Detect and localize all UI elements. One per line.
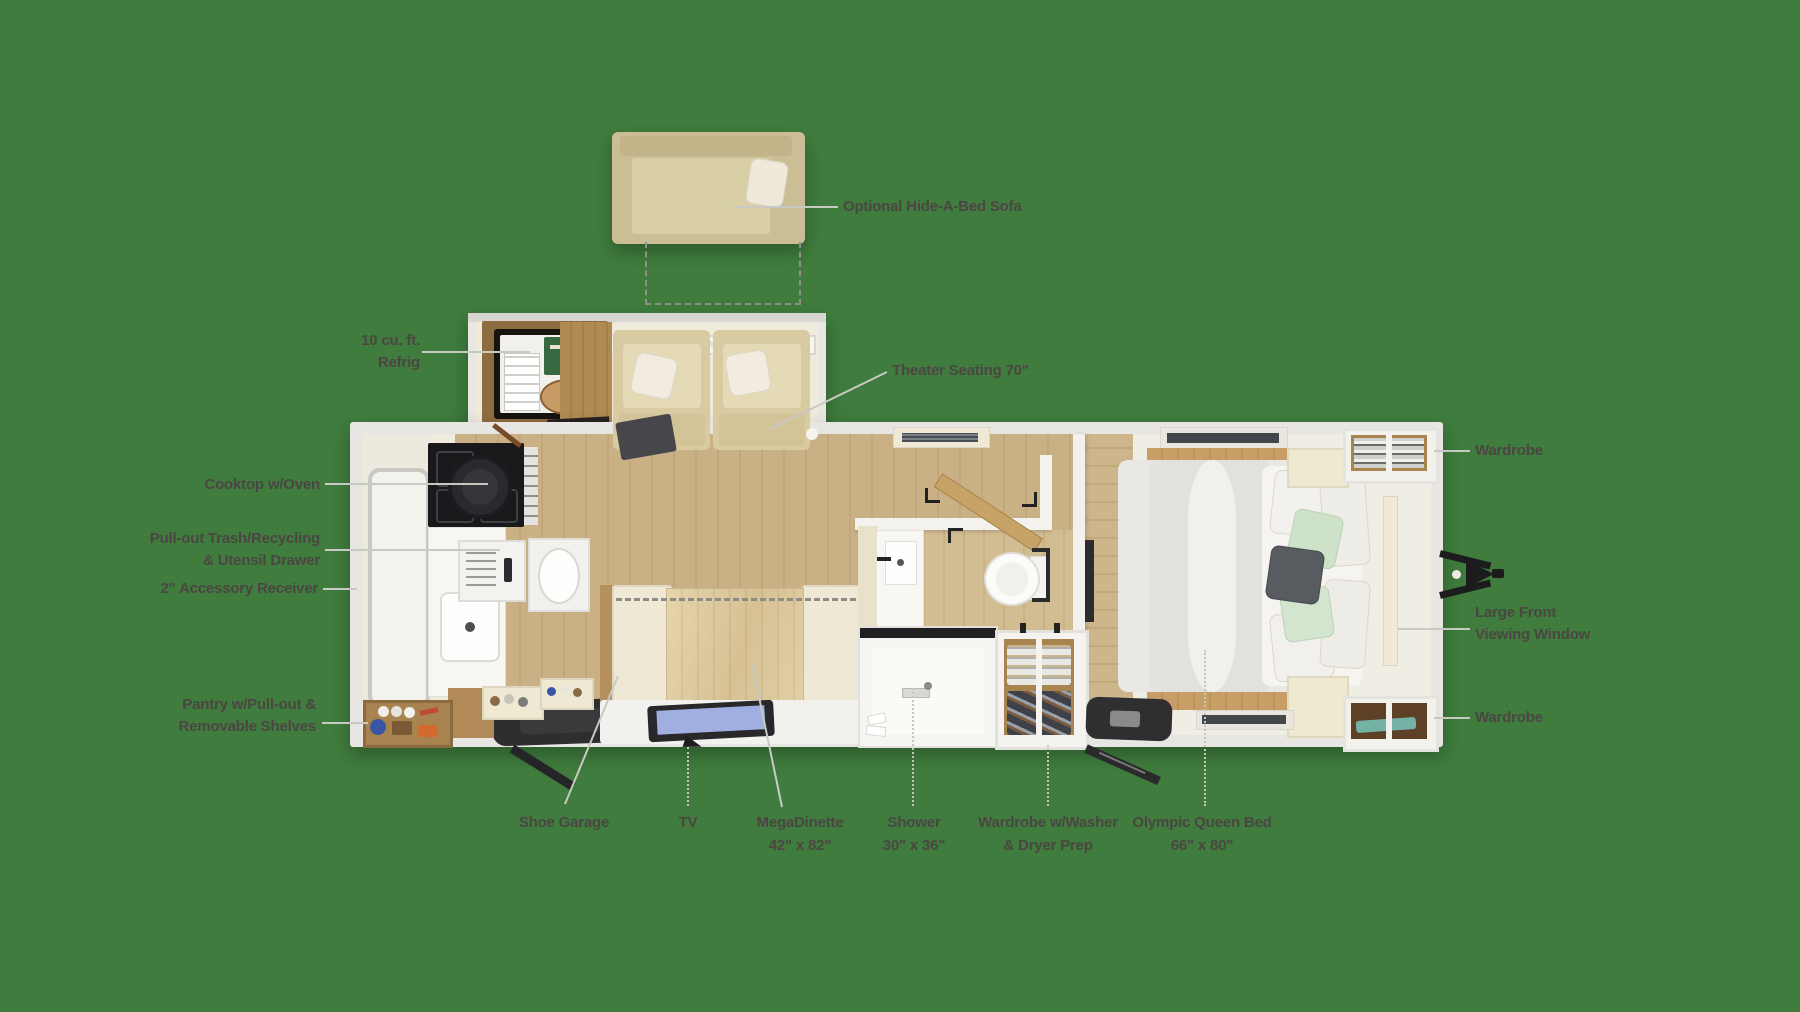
leader-refrig (422, 351, 530, 353)
label-wardrobe-bottom: Wardrobe (1475, 707, 1543, 729)
label-tv: TV (679, 811, 698, 834)
leader-bed (1204, 650, 1206, 806)
spice-drawer (482, 686, 544, 720)
dinette-bench-right (802, 585, 862, 717)
pantry (363, 700, 453, 748)
sofa-slide-dashed-outline (645, 242, 801, 305)
label-queen-bed: Olympic Queen Bed66" x 80" (1132, 811, 1271, 857)
door-hardware (1022, 492, 1037, 507)
label-megadinette: MegaDinette42" x 82" (757, 811, 844, 857)
leader-shower (912, 688, 914, 806)
label-front-window: Large FrontViewing Window (1475, 602, 1590, 646)
label-accessory-receiver: 2" Accessory Receiver (161, 578, 318, 600)
bedroom-entry-mat (1085, 697, 1172, 742)
living-window (893, 427, 990, 448)
hide-a-bed-sofa (612, 132, 805, 244)
front-wardrobe-top (1343, 428, 1439, 484)
kitchen-sink (440, 592, 500, 662)
door-hardware (925, 488, 940, 503)
hitch-hole (1452, 570, 1461, 579)
vanity-cabinet (858, 526, 878, 634)
hitch-coupler (1466, 560, 1494, 588)
leader-pantry (322, 722, 368, 724)
label-shower: Shower30" x 36" (883, 811, 945, 857)
nightstand-top (1287, 448, 1349, 488)
leader-sofa (733, 206, 838, 208)
rear-entry-door-ghost (368, 468, 430, 708)
leader-cooktop (325, 483, 488, 485)
vanity-faucet (877, 557, 891, 561)
trash-bin (538, 548, 580, 604)
dinette-table (666, 588, 804, 702)
sofa-pillow (745, 157, 790, 208)
dinette-fold-line (616, 598, 856, 601)
sofa-back-cushion (620, 136, 792, 156)
leader-trash (325, 549, 500, 551)
washer-wardrobe (995, 630, 1089, 750)
label-trash-drawer: Pull-out Trash/Recycling& Utensil Drawer (150, 528, 320, 572)
label-refrig: 10 cu. ft.Refrig (361, 330, 420, 374)
label-washer-wardrobe: Wardrobe w/Washer& Dryer Prep (978, 811, 1118, 857)
theater-pillow-right (724, 349, 773, 398)
ceiling-light (806, 428, 818, 440)
sink-drain (465, 622, 475, 632)
label-pantry: Pantry w/Pull-out &Removable Shelves (178, 694, 316, 738)
stabilizer-jack-front (1084, 744, 1161, 785)
theater-pillow-left (629, 351, 679, 401)
leader-wardrobe-bottom (1434, 717, 1470, 719)
stabilizer-jack-rear (510, 745, 576, 791)
tv (647, 700, 775, 743)
front-viewing-window (1383, 496, 1398, 666)
bedroom-top-window (1160, 427, 1288, 449)
bedroom-tv (1085, 540, 1094, 622)
accent-pillow-gray (1265, 545, 1326, 606)
cooktop (428, 443, 524, 527)
spice-drawer-2 (540, 678, 594, 710)
label-theater-seating: Theater Seating 70" (892, 360, 1029, 382)
nightstand-bottom (1287, 676, 1349, 738)
oven-control-strip (524, 447, 538, 525)
leader-wardrobe-top (1434, 450, 1470, 452)
front-wardrobe-bottom (1343, 696, 1439, 752)
dinette-bench-left (612, 585, 672, 717)
wardrobe-hook (1020, 623, 1026, 633)
pocket-door-frame (1040, 455, 1052, 530)
label-hide-a-bed-sofa: Optional Hide-A-Bed Sofa (843, 196, 1022, 218)
shower (858, 626, 998, 748)
bed-duvet-fold (1188, 460, 1236, 692)
wardrobe-hook (1054, 623, 1060, 633)
trash-pullout (528, 538, 590, 612)
leader-washer (1047, 745, 1049, 806)
hitch-tip (1492, 569, 1504, 578)
label-wardrobe-top: Wardrobe (1475, 440, 1543, 462)
leader-receiver (323, 588, 357, 590)
tv-screen (656, 705, 765, 735)
vanity-counter (876, 530, 924, 630)
label-shoe-garage: Shoe Garage (519, 811, 609, 834)
frying-pan (448, 455, 512, 519)
toilet-grab-bar (1046, 548, 1050, 602)
label-cooktop: Cooktop w/Oven (204, 474, 320, 496)
leader-front-window (1398, 628, 1470, 630)
floorplan-diagram: Optional Hide-A-Bed Sofa 10 cu. ft.Refri… (0, 0, 1800, 1012)
leader-tv (687, 747, 689, 806)
drawer-handle (504, 558, 512, 582)
door-hardware (948, 528, 963, 543)
bedroom-bottom-window (1196, 710, 1294, 730)
